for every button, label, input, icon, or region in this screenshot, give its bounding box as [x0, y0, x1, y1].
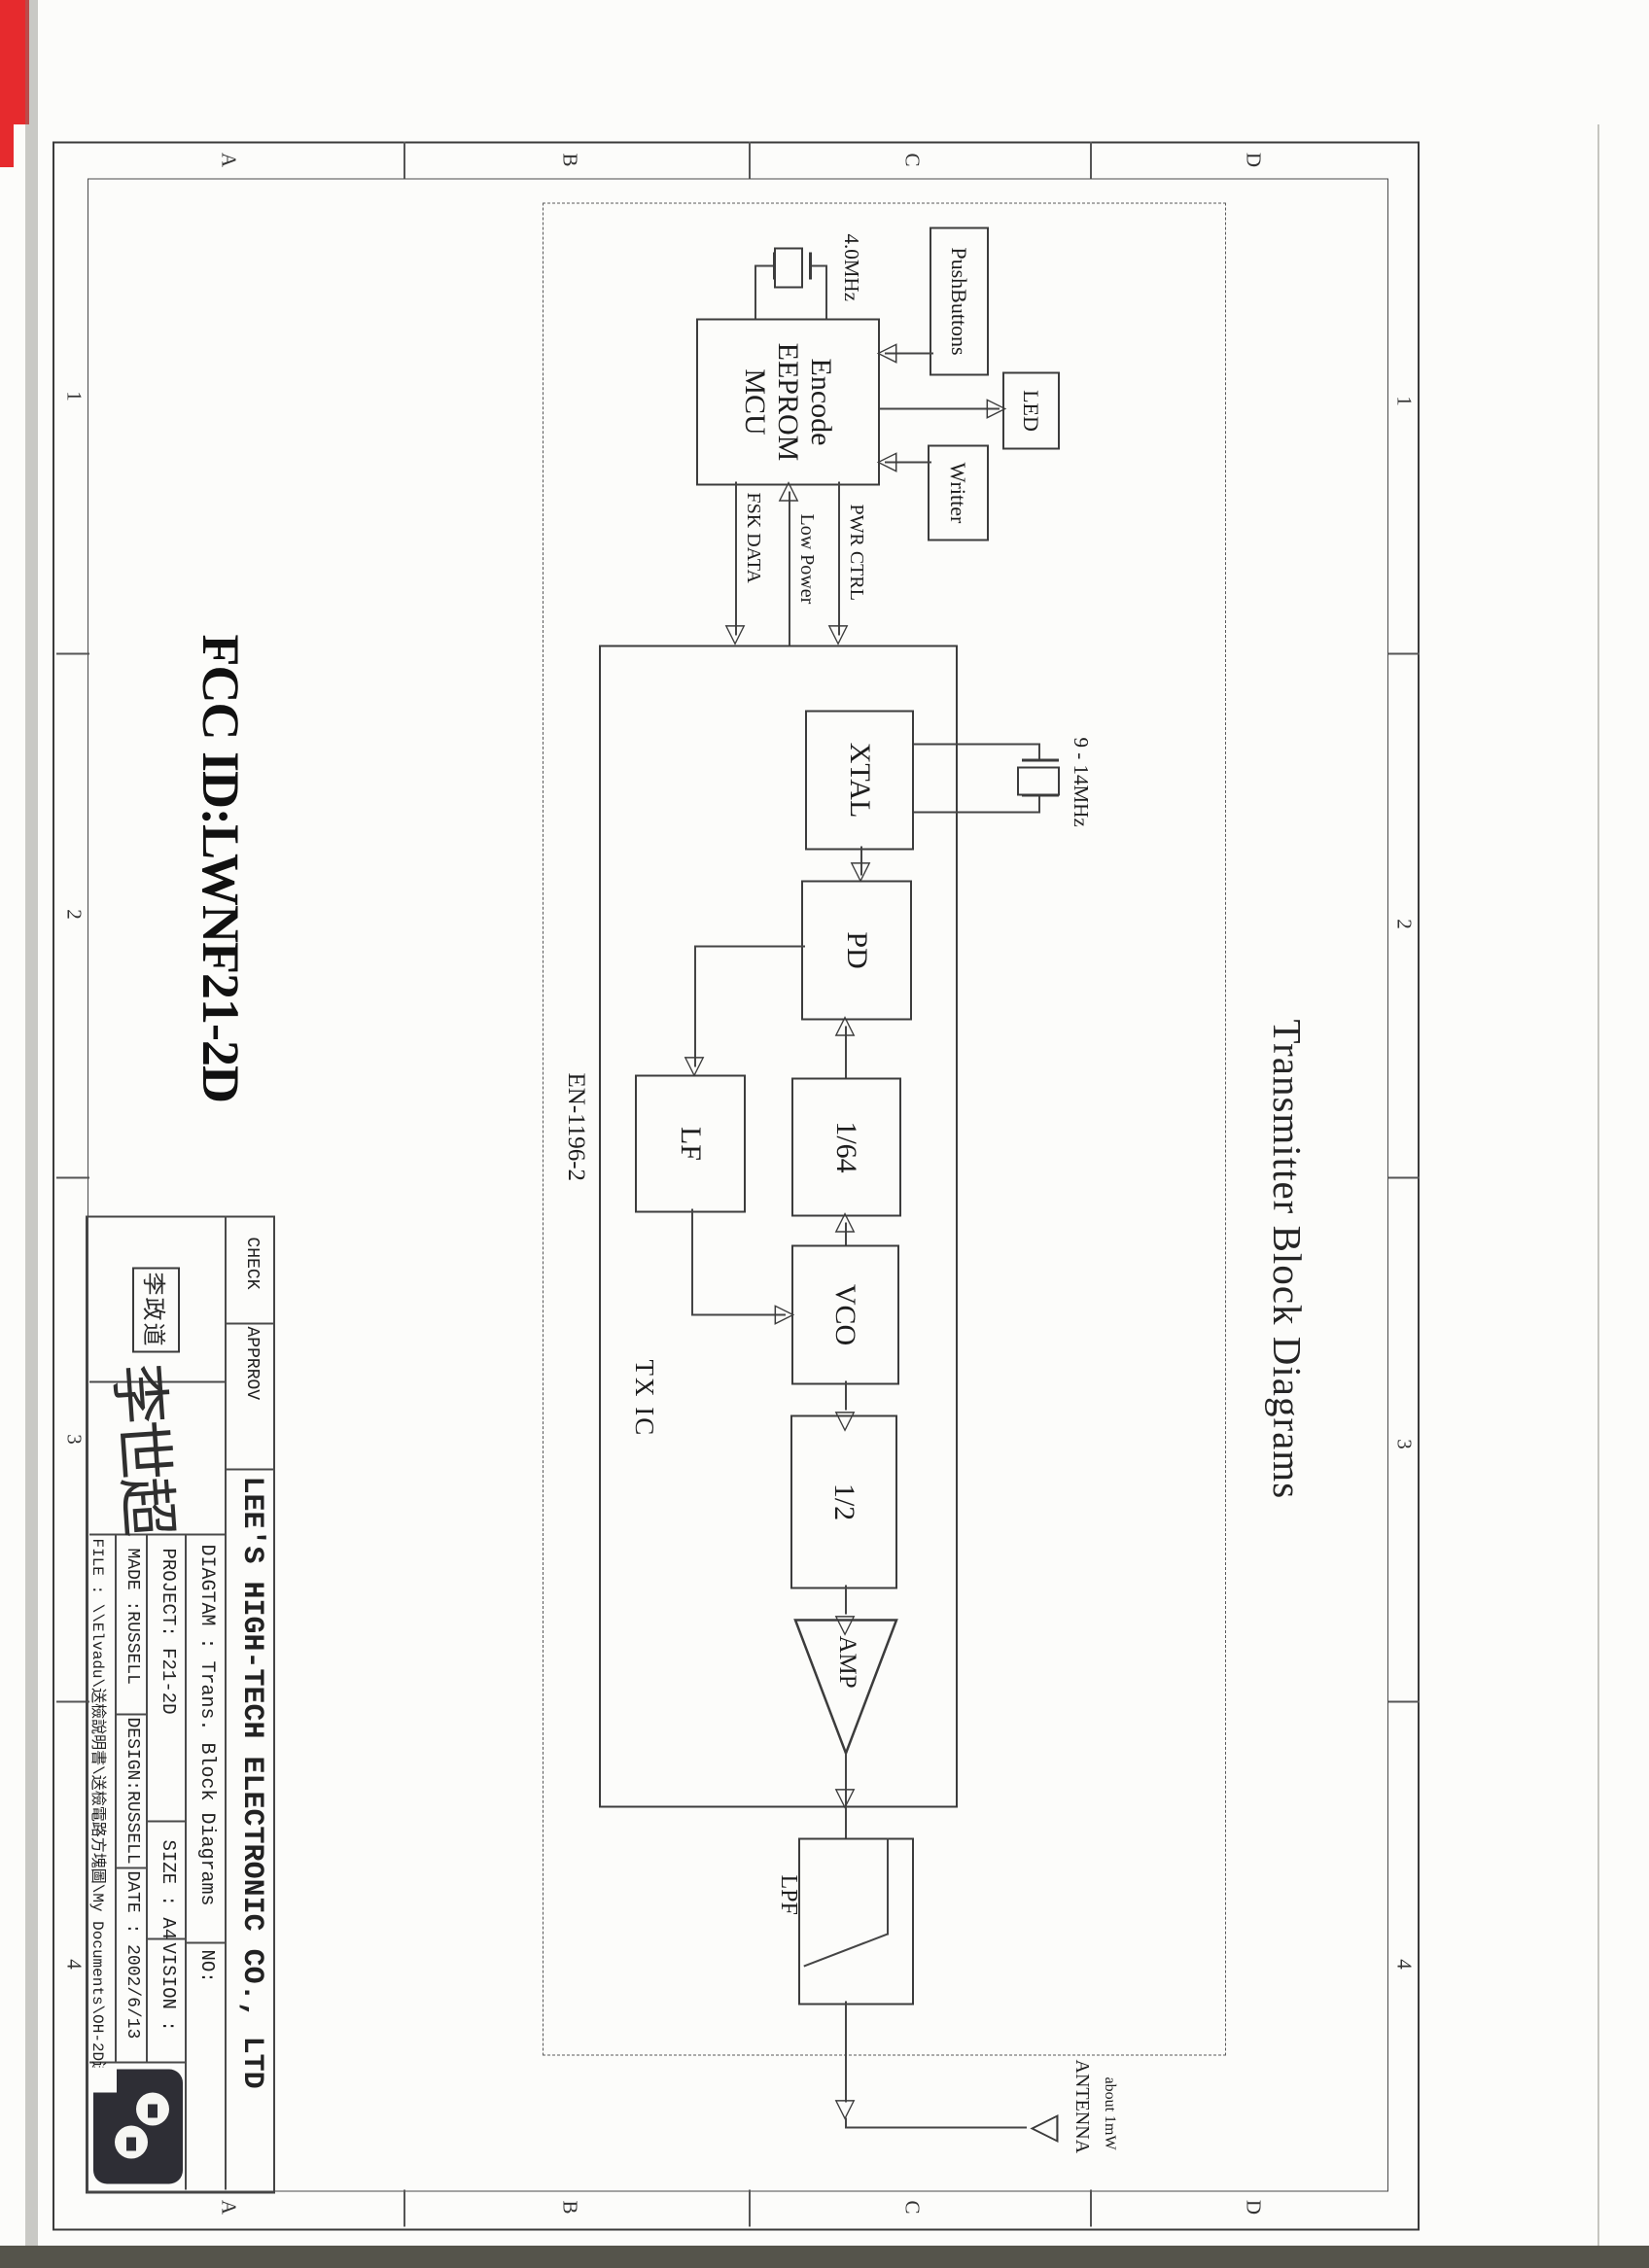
zone-tick — [1388, 652, 1420, 654]
check-stamp-text: 李政道 — [139, 1272, 173, 1347]
wire — [735, 481, 737, 635]
zone-tick — [404, 141, 406, 178]
wire — [838, 481, 840, 635]
title-block-line — [117, 1867, 148, 1868]
fsk-data-label: FSK DATA — [742, 492, 764, 582]
zone-tick — [750, 2189, 752, 2226]
writer-label: Writter — [946, 462, 971, 523]
wire — [694, 945, 696, 1066]
ref-crystal-label: 9 - 14MHz — [1069, 737, 1093, 826]
zone-tick — [1388, 1700, 1420, 1702]
mcu-box: Encode EEPROM MCU — [696, 318, 880, 485]
title-block-line — [117, 1713, 148, 1715]
antenna-icon: ▽ — [1029, 2113, 1066, 2142]
title-block-line — [227, 1468, 275, 1470]
arrowhead-left-icon: ◁ — [777, 481, 803, 502]
arrowhead-up-icon: △ — [985, 399, 1011, 419]
lpf-symbol-line — [887, 1837, 889, 1935]
vco-box: VCO — [791, 1244, 899, 1384]
border-letter: A — [217, 2199, 241, 2214]
border-number: 2 — [62, 909, 87, 920]
title-block-line — [148, 1820, 187, 1822]
lf-box: LF — [635, 1074, 746, 1212]
wire — [754, 265, 756, 318]
pd-label: PD — [840, 931, 873, 968]
mcu-crystal-label: 4.0MHz — [839, 233, 863, 300]
scan-edge-band-left — [25, 0, 38, 2268]
tx-ic-label: TX IC — [629, 1359, 659, 1437]
file-field: FILE : \\Elvadu\送檢說明書\送檢電路方塊圖\My Documen… — [88, 1538, 112, 2092]
title-block-line — [226, 1215, 228, 2189]
vco-label: VCO — [829, 1283, 862, 1344]
wire — [1038, 743, 1040, 760]
arrowhead-right-icon: ▷ — [833, 2100, 860, 2120]
low-power-label: Low Power — [795, 513, 818, 604]
design-field: DESIGN:RUSSELL — [123, 1717, 142, 1864]
check-stamp-box: 李政道 — [132, 1267, 180, 1352]
wire — [694, 945, 805, 947]
page-title: Transmitter Block Diagrams — [1264, 1019, 1311, 1499]
wire — [914, 811, 1039, 813]
crystal-plate — [809, 252, 812, 279]
arrowhead-right-icon: ▷ — [849, 862, 875, 883]
wire — [825, 265, 827, 318]
zone-tick — [750, 141, 752, 178]
zone-tick — [56, 1700, 89, 1702]
antenna-power-label: about 1mW — [1101, 2076, 1118, 2149]
zone-tick — [56, 1176, 89, 1178]
vision-field: VISION : — [158, 1942, 179, 2031]
border-number: 3 — [62, 1434, 87, 1445]
lf-label: LF — [674, 1126, 707, 1160]
title-block-line — [116, 1533, 118, 2061]
logo-wedge — [126, 2137, 136, 2150]
project-field: PROJECT: F21-2D — [158, 1548, 179, 1714]
zone-tick — [1091, 141, 1093, 178]
arrowhead-down-icon: ▽ — [875, 452, 901, 472]
mcu-line-eeprom: EEPROM — [772, 342, 805, 461]
antenna-label: ANTENNA — [1070, 2059, 1093, 2153]
title-block-line — [147, 1533, 149, 2061]
div64-label: 1/64 — [830, 1121, 863, 1172]
border-letter: B — [558, 2200, 582, 2214]
arrowhead-right-icon: ▷ — [833, 1412, 860, 1432]
wire — [691, 1208, 693, 1315]
border-letter: B — [558, 153, 582, 166]
lpf-box — [798, 1837, 914, 2005]
arrowhead-right-icon: ▷ — [723, 625, 750, 646]
wire — [880, 407, 1000, 409]
border-number: 1 — [62, 391, 87, 401]
logo-tab — [91, 2067, 117, 2092]
title-block-line — [227, 1322, 275, 1324]
pd-box: PD — [801, 880, 912, 1020]
zone-tick — [1388, 1176, 1420, 1178]
no-field: NO: — [196, 1949, 218, 1982]
title-block-line — [187, 1941, 227, 1943]
lpf-label: LPF — [775, 1874, 801, 1914]
border-letter: C — [900, 153, 925, 166]
border-number: 4 — [62, 1959, 87, 1970]
scan-edge-band-bottom — [0, 2246, 1649, 2268]
landscape-drawing: D C B A D C B A 1 2 3 4 1 2 3 4 Transmit… — [0, 0, 1649, 2268]
border-letter: D — [1242, 2199, 1266, 2214]
company-name: LEE'S HIGH-TECH ELECTRONIC CO., LTD — [235, 1476, 268, 2088]
pwr-ctrl-label: PWR CTRL — [845, 504, 867, 600]
fcc-id: FCC ID:LWNF21-2D — [191, 634, 251, 1102]
xtal-box: XTAL — [805, 710, 914, 850]
made-field: MADE :RUSSELL — [123, 1548, 142, 1684]
date-field: DATE : 2002/6/13 — [123, 1870, 142, 2039]
wire — [845, 1380, 847, 1410]
crystal-plate — [1022, 758, 1059, 761]
border-number: 4 — [1392, 1959, 1417, 1970]
arrowhead-right-icon: ▷ — [683, 1057, 709, 1077]
wire — [845, 1585, 847, 1614]
border-number: 1 — [1392, 396, 1417, 406]
size-field: SIZE : A4 — [158, 1839, 179, 1939]
wire — [789, 491, 790, 645]
zone-tick — [1091, 2189, 1093, 2226]
arrowhead-left-icon: ◁ — [833, 1016, 860, 1036]
zone-tick — [56, 652, 89, 654]
xtal-label: XTAL — [843, 742, 876, 818]
crystal-body — [1017, 766, 1060, 795]
wire — [1038, 795, 1040, 813]
amp-label: AMP — [833, 1635, 860, 1688]
border-number: 2 — [1392, 919, 1417, 929]
approv-signature: 李世超 — [99, 1360, 198, 1535]
check-label: CHECK — [242, 1237, 262, 1289]
logo-wedge — [148, 2104, 158, 2117]
scan-edge-line-right — [1597, 124, 1599, 2268]
tx-ic-part-number: EN-1196-2 — [562, 1072, 589, 1181]
border-number: 3 — [1392, 1439, 1417, 1449]
led-label: LED — [1019, 390, 1044, 432]
company-logo — [93, 2069, 183, 2183]
diagram-name-field: DIAGTAM : Trans. Block Diagrams — [195, 1544, 218, 1905]
border-letter: D — [1242, 152, 1266, 166]
border-letter: C — [900, 2200, 925, 2214]
wire — [914, 743, 1039, 745]
mcu-line-encode: Encode — [805, 342, 838, 461]
antenna-mast — [845, 2126, 1027, 2128]
arrowhead-right-icon: ▷ — [833, 1616, 860, 1636]
title-block-line — [186, 1533, 188, 2189]
scanned-page: D C B A D C B A 1 2 3 4 1 2 3 4 Transmit… — [0, 0, 1649, 2268]
writer-box: Writter — [928, 444, 989, 541]
div2-box: 1/2 — [790, 1414, 897, 1588]
arrowhead-left-icon: ◁ — [833, 1212, 860, 1233]
arrowhead-up-icon: △ — [773, 1305, 799, 1325]
approv-label: APPRROV — [242, 1326, 262, 1400]
wire — [754, 264, 774, 266]
div2-label: 1/2 — [827, 1483, 860, 1519]
arrowhead-down-icon: ▽ — [875, 343, 901, 364]
pushbuttons-label: PushButtons — [947, 247, 972, 355]
scan-red-mark — [0, 124, 14, 167]
zone-tick — [404, 2189, 406, 2226]
arrowhead-right-icon: ▷ — [833, 1789, 860, 1809]
div64-box: 1/64 — [791, 1077, 901, 1216]
mcu-line-mcu: MCU — [739, 342, 772, 461]
crystal-body — [774, 247, 803, 288]
pushbuttons-box: PushButtons — [930, 227, 989, 375]
wire — [845, 2001, 847, 2102]
arrowhead-right-icon: ▷ — [826, 625, 853, 646]
border-letter: A — [217, 152, 241, 166]
